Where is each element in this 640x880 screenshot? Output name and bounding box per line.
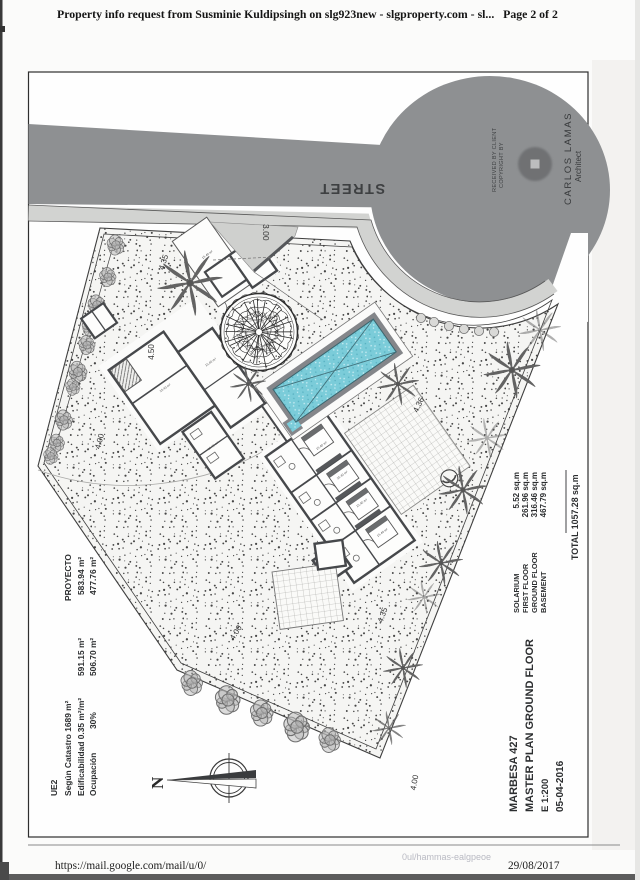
svg-text:MASTER PLAN GROUND FLOOR: MASTER PLAN GROUND FLOOR: [524, 639, 536, 812]
svg-text:29/08/2017: 29/08/2017: [508, 860, 560, 872]
svg-text:477.76 m²: 477.76 m²: [88, 557, 98, 595]
svg-text:Architect: Architect: [574, 150, 583, 182]
svg-text:COPYRIGHT BY: COPYRIGHT BY: [499, 142, 505, 188]
svg-text:Property info request from Sus: Property info request from Susminie Kuld…: [57, 7, 558, 21]
svg-text:PROYECTO: PROYECTO: [63, 554, 73, 601]
svg-text:Edificabilidad 0.35 m²/m²: Edificabilidad 0.35 m²/m²: [76, 698, 86, 796]
svg-text:Ocupación: Ocupación: [88, 753, 98, 796]
svg-text:https://mail.google.com/mail/u: https://mail.google.com/mail/u/0/: [55, 860, 207, 872]
svg-text:FIRST FLOOR: FIRST FLOOR: [521, 563, 530, 613]
svg-text:RECEIVED BY CLIENT: RECEIVED BY CLIENT: [492, 127, 498, 192]
svg-text:CARLOS LAMAS: CARLOS LAMAS: [563, 112, 574, 205]
svg-text:MARBESA 427: MARBESA 427: [508, 735, 520, 812]
svg-text:506.70 m²: 506.70 m²: [88, 638, 98, 676]
svg-text:583.94 m²: 583.94 m²: [76, 557, 86, 595]
svg-text:UE2: UE2: [49, 779, 59, 796]
svg-text:BASEMENT: BASEMENT: [539, 571, 548, 613]
svg-text:316.46 sq.m: 316.46 sq.m: [530, 472, 539, 517]
svg-text:SOLARIUM: SOLARIUM: [512, 574, 521, 613]
svg-text:4.50: 4.50: [147, 344, 156, 360]
svg-text:3.00: 3.00: [261, 224, 271, 241]
svg-text:261.96 sq.m: 261.96 sq.m: [521, 472, 530, 517]
svg-text:N: N: [148, 776, 167, 789]
svg-text:5.52 sq.m: 5.52 sq.m: [512, 472, 521, 508]
svg-text:30%: 30%: [88, 712, 98, 729]
svg-text:E 1:200: E 1:200: [540, 779, 551, 812]
svg-text:467.79 sq.m: 467.79 sq.m: [539, 472, 548, 517]
svg-text:Según Catastro 1689 m²: Según Catastro 1689 m²: [63, 700, 73, 796]
svg-text:0ul/hammas-ealgpeoe: 0ul/hammas-ealgpeoe: [402, 852, 491, 862]
svg-text:05-04-2016: 05-04-2016: [555, 760, 566, 812]
svg-text:591.15 m²: 591.15 m²: [76, 638, 86, 676]
svg-text:STREET: STREET: [319, 180, 385, 196]
svg-text:GROUND FLOOR: GROUND FLOOR: [530, 552, 539, 613]
svg-text:TOTAL 1057.28 sq.m: TOTAL 1057.28 sq.m: [570, 474, 580, 560]
